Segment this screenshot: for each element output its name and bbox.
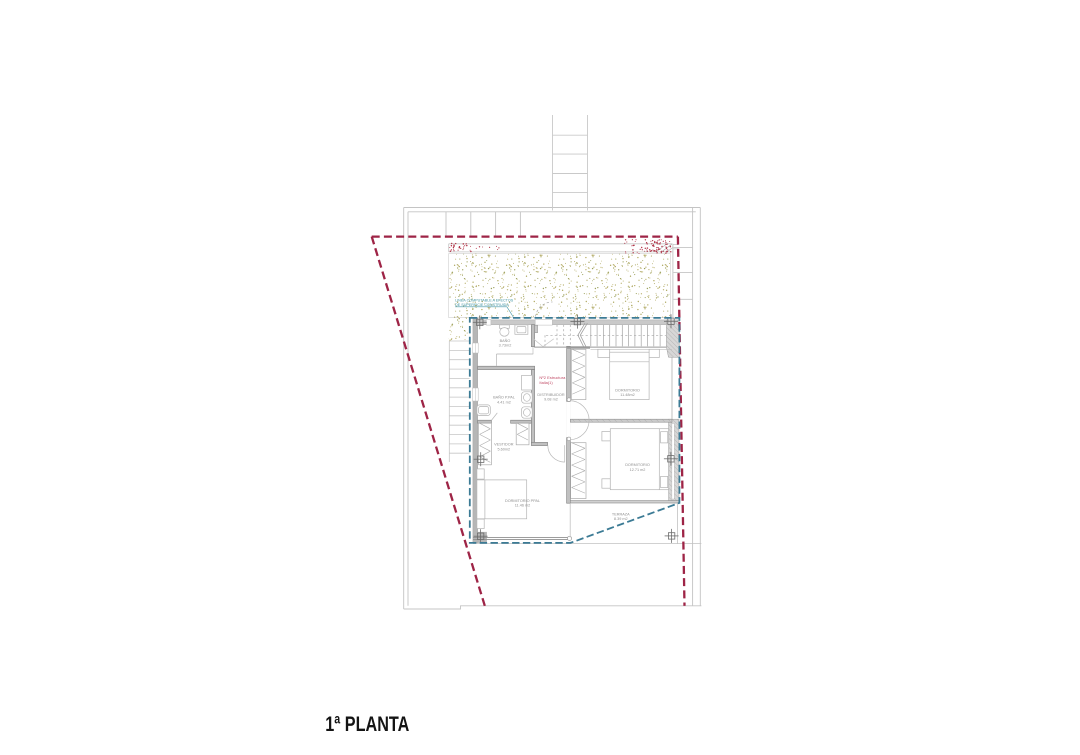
svg-text:VESTIDOR: VESTIDOR (494, 443, 514, 447)
svg-text:5.60m2: 5.60m2 (497, 447, 510, 451)
svg-text:12.71 m2: 12.71 m2 (630, 468, 646, 472)
svg-text:DE SUPERFICIE CONSTRUIDA: DE SUPERFICIE CONSTRUIDA (455, 303, 509, 307)
svg-text:9.08 m2: 9.08 m2 (544, 398, 558, 402)
svg-text:8.39 m2: 8.39 m2 (614, 517, 628, 521)
svg-text:Italia(1): Italia(1) (539, 380, 553, 385)
svg-text:3.73m2: 3.73m2 (499, 344, 512, 348)
svg-text:DISTRIBUIDOR: DISTRIBUIDOR (537, 393, 564, 397)
svg-text:11.48m2: 11.48m2 (620, 393, 635, 397)
svg-text:1ª PLANTA: 1ª PLANTA (325, 712, 409, 736)
svg-text:BAÑO P.PAL: BAÑO P.PAL (493, 395, 515, 400)
svg-text:DORMITORIO PPAL: DORMITORIO PPAL (505, 499, 540, 503)
svg-text:DORMITORIO: DORMITORIO (615, 388, 640, 392)
svg-text:4.41 m2: 4.41 m2 (497, 400, 511, 404)
svg-text:TERRAZA: TERRAZA (612, 512, 630, 516)
svg-text:11.46 m2: 11.46 m2 (515, 504, 531, 508)
svg-text:BAÑO: BAÑO (500, 338, 511, 343)
svg-text:DORMITORIO: DORMITORIO (625, 463, 650, 467)
